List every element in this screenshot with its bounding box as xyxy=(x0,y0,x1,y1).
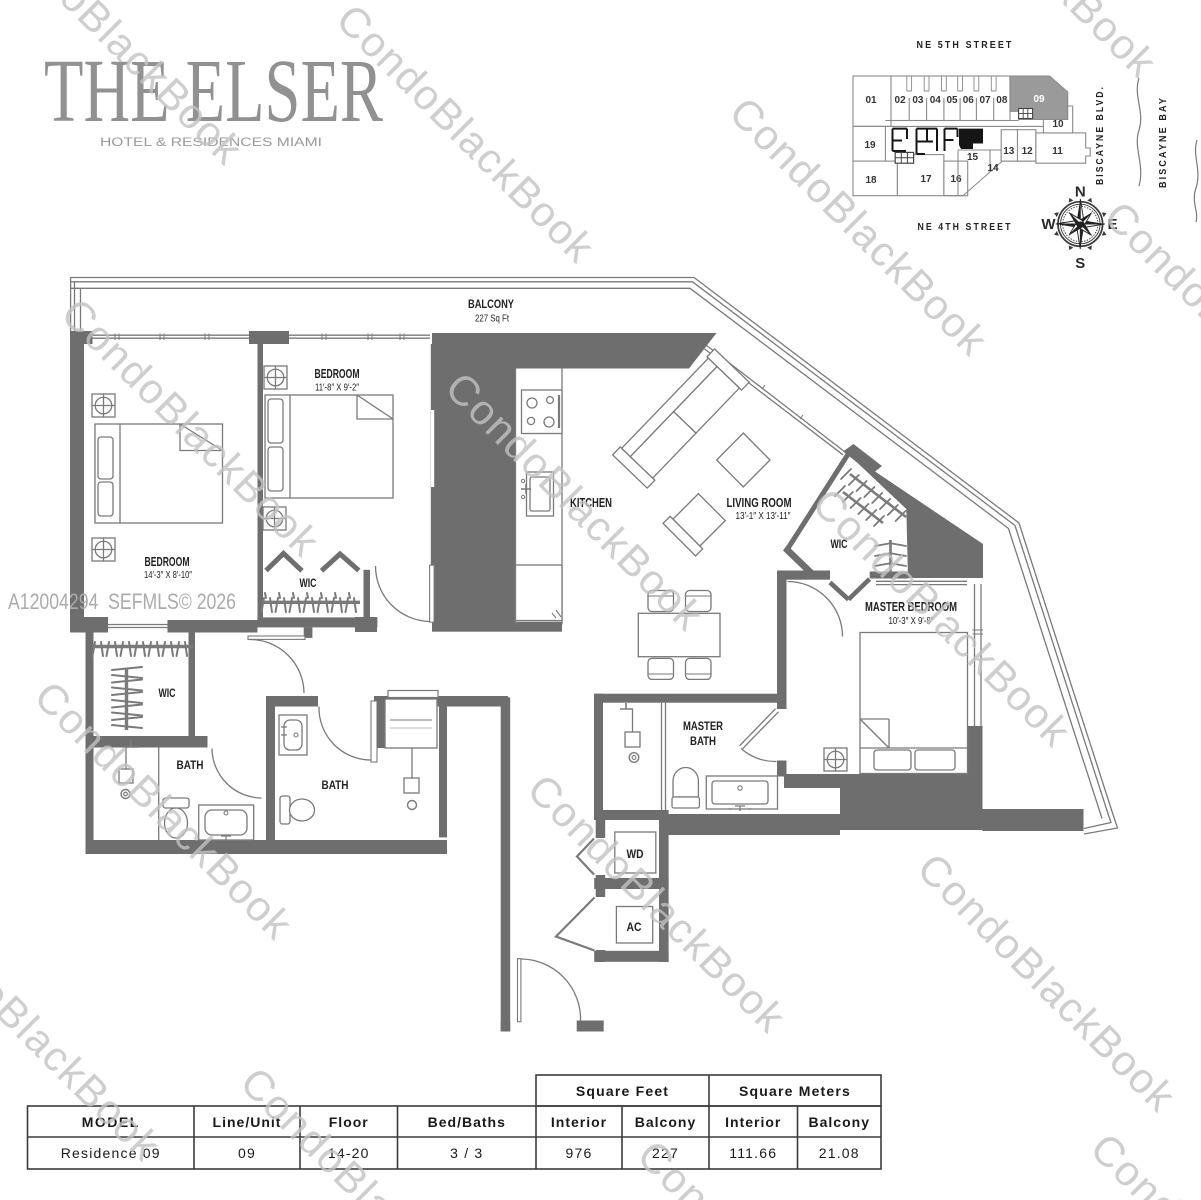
svg-text:Square Meters: Square Meters xyxy=(739,1083,851,1099)
svg-text:18: 18 xyxy=(865,175,877,186)
svg-text:15: 15 xyxy=(967,152,979,163)
svg-text:3 / 3: 3 / 3 xyxy=(450,1145,483,1161)
svg-text:Square Feet: Square Feet xyxy=(576,1083,669,1099)
svg-text:21.08: 21.08 xyxy=(819,1145,860,1161)
svg-text:Balcony: Balcony xyxy=(635,1114,696,1130)
svg-text:AC: AC xyxy=(627,922,642,934)
svg-text:Interior: Interior xyxy=(725,1114,781,1130)
svg-text:Balcony: Balcony xyxy=(809,1114,870,1130)
svg-text:MASTER: MASTER xyxy=(683,719,723,733)
svg-text:BATH: BATH xyxy=(322,778,349,792)
svg-text:13′-1″ X 13′-11″: 13′-1″ X 13′-11″ xyxy=(736,510,791,522)
svg-text:N: N xyxy=(1075,184,1086,201)
svg-text:BISCAYNE BLVD.: BISCAYNE BLVD. xyxy=(1094,85,1106,185)
svg-text:976: 976 xyxy=(566,1145,593,1161)
svg-text:W: W xyxy=(1041,216,1056,233)
svg-text:12: 12 xyxy=(1022,146,1034,157)
svg-text:227 Sq Ft: 227 Sq Ft xyxy=(475,313,509,325)
svg-text:09: 09 xyxy=(238,1145,256,1161)
svg-text:08: 08 xyxy=(996,95,1008,106)
svg-text:19: 19 xyxy=(864,140,876,151)
svg-text:06: 06 xyxy=(963,95,975,106)
svg-text:16: 16 xyxy=(950,174,962,185)
svg-text:13: 13 xyxy=(1003,146,1015,157)
svg-text:A12004294 SEFMLS© 2026: A12004294 SEFMLS© 2026 xyxy=(8,589,236,614)
svg-text:Interior: Interior xyxy=(551,1114,607,1130)
svg-text:NE 4TH STREET: NE 4TH STREET xyxy=(918,221,1013,233)
svg-text:01: 01 xyxy=(865,95,877,106)
svg-text:14′-3″ X 8′-10″: 14′-3″ X 8′-10″ xyxy=(144,569,192,581)
svg-text:11: 11 xyxy=(1052,146,1063,157)
svg-text:09: 09 xyxy=(1033,94,1045,105)
svg-text:05: 05 xyxy=(946,95,958,106)
svg-text:Bed/Baths: Bed/Baths xyxy=(428,1114,506,1130)
svg-text:LIVING ROOM: LIVING ROOM xyxy=(727,496,792,510)
svg-text:03: 03 xyxy=(912,95,924,106)
svg-text:WIC: WIC xyxy=(300,578,317,590)
svg-text:14: 14 xyxy=(987,163,999,174)
svg-text:04: 04 xyxy=(930,95,942,106)
svg-text:WIC: WIC xyxy=(159,688,176,700)
svg-text:BATH: BATH xyxy=(177,758,204,772)
svg-text:111.66: 111.66 xyxy=(729,1145,777,1161)
svg-text:02: 02 xyxy=(895,95,907,106)
svg-text:BEDROOM: BEDROOM xyxy=(145,555,190,569)
svg-text:BEDROOM: BEDROOM xyxy=(315,367,360,381)
svg-text:S: S xyxy=(1075,255,1085,272)
svg-text:07: 07 xyxy=(979,95,991,106)
svg-text:11′-8″ X 9′-2″: 11′-8″ X 9′-2″ xyxy=(315,382,359,394)
svg-text:BALCONY: BALCONY xyxy=(468,297,514,311)
svg-text:17: 17 xyxy=(920,174,932,185)
svg-text:BISCAYNE BAY: BISCAYNE BAY xyxy=(1157,96,1169,188)
svg-text:10: 10 xyxy=(1052,119,1064,130)
svg-text:BATH: BATH xyxy=(690,734,716,748)
svg-text:NE 5TH STREET: NE 5TH STREET xyxy=(917,39,1014,51)
